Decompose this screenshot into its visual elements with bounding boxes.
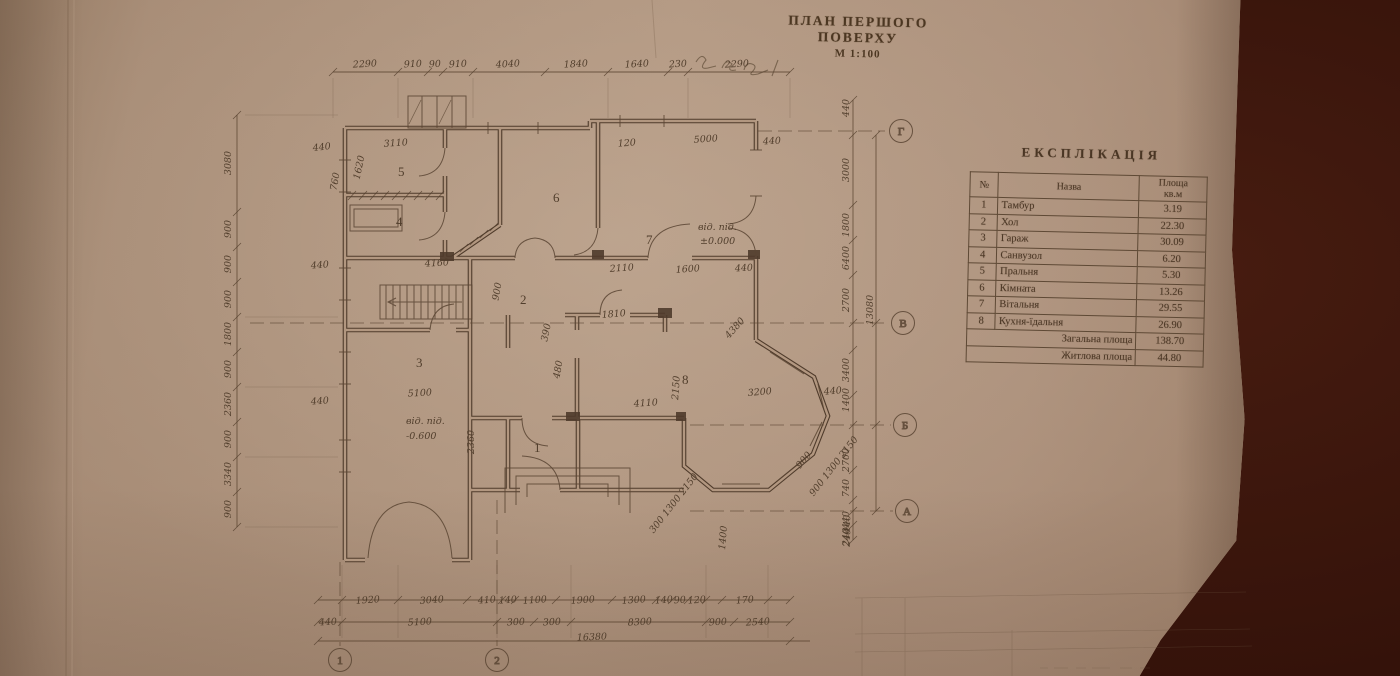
chimney-block xyxy=(408,96,466,128)
dimension-label: 410 xyxy=(476,594,496,606)
dimension-label: 440 xyxy=(318,617,338,629)
dimension-label: 900 xyxy=(223,360,234,378)
dimension-label: 1400 xyxy=(717,525,730,550)
dimension-label: 910 xyxy=(404,59,423,71)
staircase xyxy=(380,285,472,319)
dimension-label: 480 xyxy=(551,360,565,381)
dimension-label: 16380 xyxy=(577,631,608,643)
dimension-label: 2110 xyxy=(608,262,634,275)
dimension-label: 1100 xyxy=(522,594,547,607)
dimension-label: 1920 xyxy=(355,594,380,607)
dimension-label: 900 xyxy=(223,255,234,273)
dimension-label: 230 xyxy=(668,59,688,71)
door-arcs xyxy=(368,148,756,558)
dimension-labels: 2290910909104040184016402302290308090090… xyxy=(223,58,876,643)
dimension-label: 1300 xyxy=(621,594,646,607)
dimension-label: 3110 xyxy=(383,137,408,150)
dimension-label: 300 xyxy=(543,617,562,629)
dimension-label: 2360 xyxy=(466,430,477,455)
dimension-label: 440 xyxy=(309,259,329,271)
dimension-label: 1600 xyxy=(675,263,700,276)
dimension-label: 90 xyxy=(673,595,686,607)
dimension-label: 910 xyxy=(449,59,468,71)
explication-block: ЕКСПЛІКАЦІЯ № Назва Площакв.м 1Тамбур3.1… xyxy=(964,143,1215,368)
dimension-label: 740 xyxy=(841,479,852,497)
page-title: ПЛАН ПЕРШОГО ПОВЕРХУ xyxy=(758,12,959,48)
dimension-label: 900 xyxy=(223,500,234,518)
extension-lines xyxy=(245,78,790,638)
level-garage-label: від. під. xyxy=(406,416,445,427)
dimension-label: 300 1300 2150 xyxy=(647,471,700,535)
dimension-label: 1800 xyxy=(841,213,852,237)
axis-label-v: В xyxy=(899,318,906,330)
axis-label-a: А xyxy=(903,506,911,518)
dimension-label: 13080 xyxy=(865,295,876,325)
col-header-num: № xyxy=(970,172,999,198)
level-main-value: ±0.000 xyxy=(700,236,735,247)
room-1-label: 1 xyxy=(534,440,541,455)
dimension-label: 2700 xyxy=(841,288,852,313)
axis-label-1: 1 xyxy=(337,655,343,667)
dimension-label: 1900 xyxy=(570,594,595,607)
axis-label-b: Б xyxy=(902,420,908,432)
dimension-label: 2290 xyxy=(352,58,378,70)
dimension-label: 900 xyxy=(223,430,234,448)
dimension-label: 4380 xyxy=(722,316,747,342)
dimension-label: 390 xyxy=(539,322,554,342)
walls xyxy=(345,121,828,560)
room-3-label: 3 xyxy=(416,355,423,370)
dimension-label: 2540 xyxy=(745,616,771,628)
dimension-label: 1800 xyxy=(223,322,234,346)
level-main-label: від. під. xyxy=(698,222,737,233)
dimension-label: 120 xyxy=(687,594,706,606)
title-block-lines xyxy=(855,592,1252,676)
room-5-label: 5 xyxy=(398,164,405,179)
dimension-label: 4110 xyxy=(632,397,658,410)
dimension-label: 440 xyxy=(734,263,754,275)
dimension-label: 900 xyxy=(223,220,234,238)
col-header-name: Назва xyxy=(998,172,1139,200)
axis-label-g: Г xyxy=(898,126,904,138)
dimension-label: 1400 xyxy=(841,388,852,412)
dimension-label: 5000 xyxy=(693,133,718,146)
dimension-label: 5100 xyxy=(408,616,433,628)
dimension-label: 6400 xyxy=(841,246,852,270)
dimension-label: 2360 xyxy=(223,392,234,417)
dimension-label: 90 xyxy=(429,59,442,71)
room-4-label: 4 xyxy=(396,214,403,229)
wall-pillars xyxy=(440,250,760,421)
room-8-label: 8 xyxy=(682,372,689,387)
axis-label-2: 2 xyxy=(494,655,500,667)
col-header-area: Площакв.м xyxy=(1139,176,1207,203)
dimension-label: 440 xyxy=(762,136,782,148)
dimension-label: 170 xyxy=(735,594,754,606)
photo-of-floor-plan: Г В Б А 1 2 1 2 3 4 5 6 7 8 від. під. ±0… xyxy=(0,0,1400,676)
drawing-title: ПЛАН ПЕРШОГО ПОВЕРХУ М 1:100 xyxy=(758,12,959,62)
dimension-label: 4040 xyxy=(495,58,521,70)
dimension-label: 3080 xyxy=(223,151,234,175)
room-7-label: 7 xyxy=(646,232,653,247)
dimension-label: 4160 xyxy=(424,257,450,269)
dimension-label: 440 xyxy=(822,385,842,398)
room-2-label: 2 xyxy=(520,292,527,307)
dimension-label: 900 xyxy=(709,617,728,629)
dimension-label: 440 xyxy=(309,395,329,407)
dimension-label: 2290 xyxy=(724,58,750,70)
dimension-label: 240 xyxy=(842,529,854,549)
window-marks xyxy=(339,115,824,484)
dimension-label: 3000 xyxy=(841,158,852,182)
dimension-label: 300 xyxy=(507,617,526,629)
dimension-label: 900 xyxy=(223,290,234,308)
dimension-label: 1810 xyxy=(601,308,626,321)
dimension-label: 3400 xyxy=(841,358,852,382)
dimension-label: 3200 xyxy=(747,386,772,399)
dimension-label: 1620 xyxy=(352,155,368,181)
dimension-label: 440 xyxy=(311,141,331,154)
dimension-label: 140 xyxy=(654,594,673,606)
level-garage-value: -0.600 xyxy=(406,431,436,442)
room-6-label: 6 xyxy=(553,190,560,205)
dimension-label: 440 xyxy=(841,99,852,118)
dimension-label: 120 xyxy=(617,137,636,149)
dimension-label: 8300 xyxy=(628,616,653,628)
dimension-label: 3040 xyxy=(419,594,444,607)
dimension-label: 5100 xyxy=(408,387,433,399)
dimension-label: 760 xyxy=(329,172,343,192)
dimension-label: 2150 xyxy=(670,375,683,401)
dimension-label: 1640 xyxy=(625,58,650,70)
explication-table: № Назва Площакв.м 1Тамбур3.19 2Хол22.30 … xyxy=(966,171,1208,367)
dimension-label: 1840 xyxy=(564,58,589,70)
paper-creases xyxy=(66,0,656,676)
dimension-label: 3340 xyxy=(223,462,234,486)
dimension-label: 140 xyxy=(498,594,517,606)
dimension-label: 900 xyxy=(491,282,505,302)
bathtub-fixture xyxy=(350,205,402,231)
